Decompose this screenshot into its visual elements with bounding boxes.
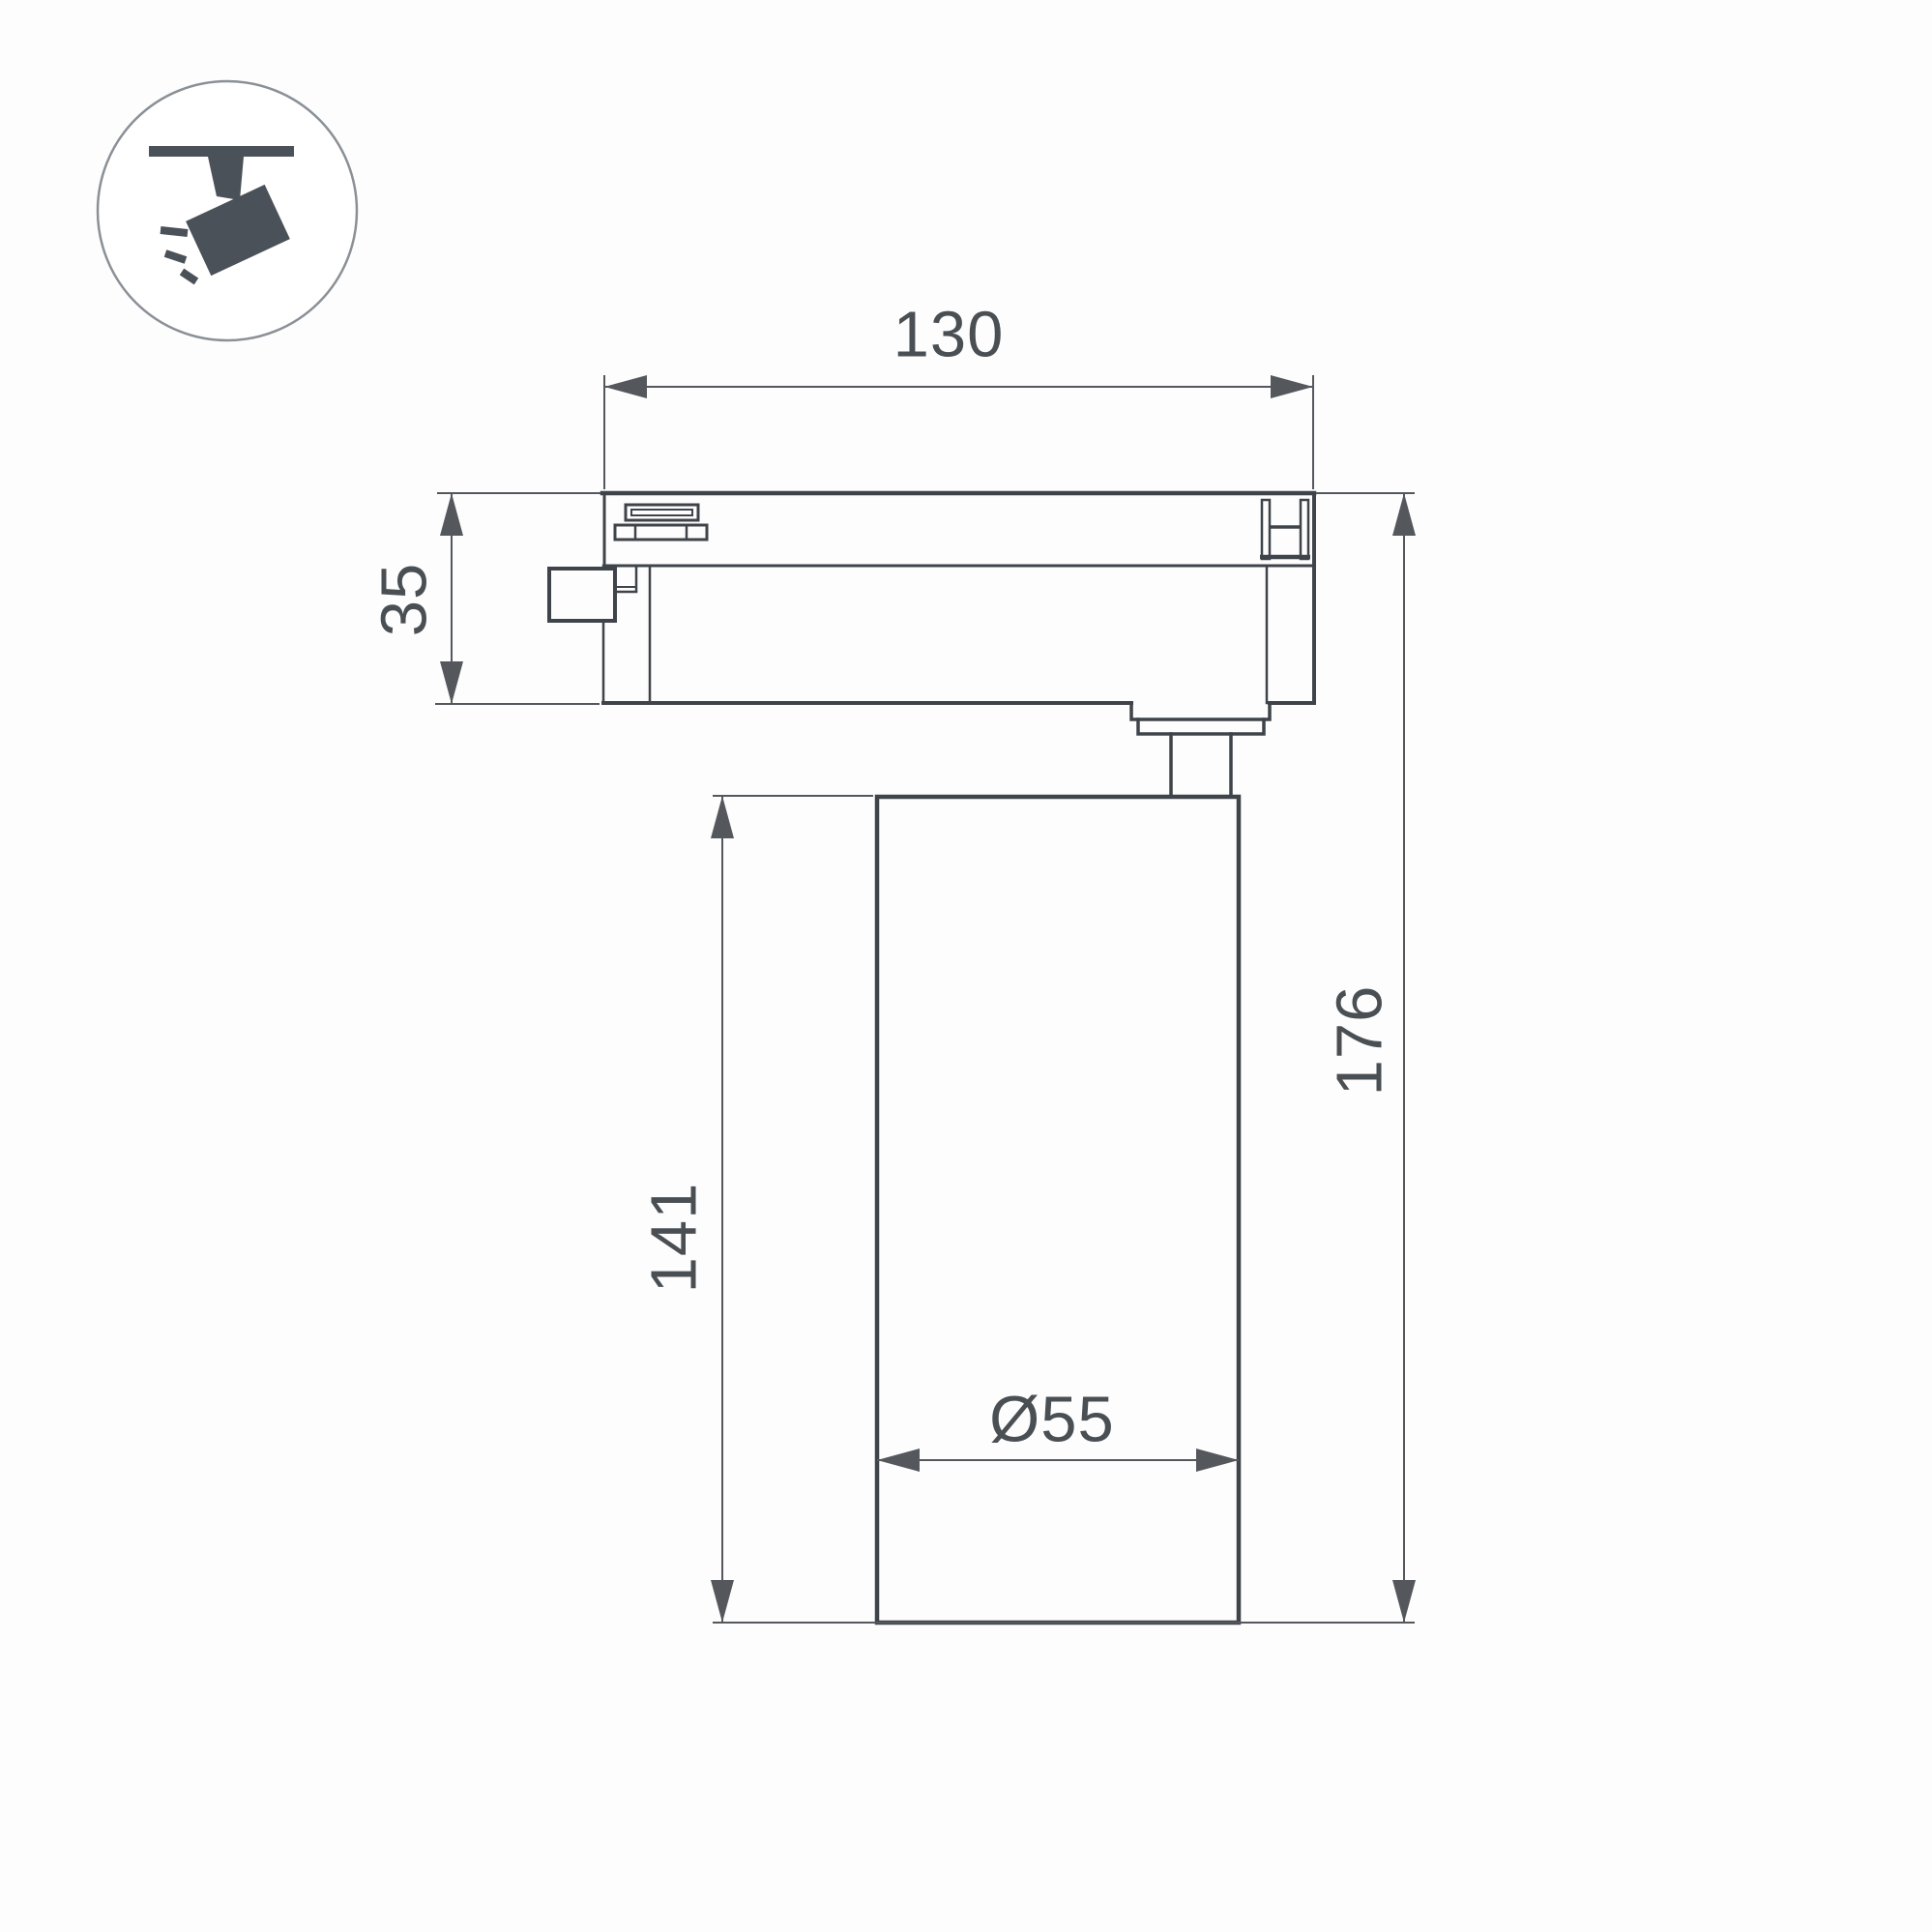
arrowhead-176-bottom	[1392, 1580, 1416, 1623]
arrowhead-130-right	[1271, 375, 1313, 398]
arrowhead-35-bottom	[440, 661, 463, 704]
dimension-body-height	[711, 796, 873, 1623]
track-spotlight-icon	[98, 81, 357, 340]
latch-right-wall	[1301, 500, 1308, 559]
latch-left-wall	[1262, 500, 1270, 559]
arrowhead-130-left	[604, 375, 647, 398]
dim-label-track-width: 130	[893, 303, 1005, 367]
contact-clip-lower	[615, 525, 707, 540]
dimension-track-width	[604, 375, 1313, 489]
contact-clip-upper	[626, 505, 698, 520]
track-adapter-outline	[602, 493, 1314, 703]
arrowhead-141-top	[711, 796, 734, 838]
stem-flange-step1	[1131, 703, 1270, 719]
adapter-side-lock-tab	[549, 569, 615, 621]
adapter-contact-clips	[615, 505, 707, 540]
mount-stem	[1131, 703, 1270, 797]
arrowhead-176-top	[1392, 493, 1416, 536]
dim-label-total-height: 176	[1328, 985, 1392, 1097]
arrowhead-35-top	[440, 493, 463, 536]
dim-label-diameter: Ø55	[989, 1388, 1115, 1452]
arrowhead-141-bottom	[711, 1580, 734, 1623]
drawing-canvas: 130 35 141 176 Ø55	[0, 0, 1932, 1932]
stem-flange-step2	[1138, 719, 1264, 734]
dim-label-body-height: 141	[642, 1183, 707, 1294]
dim-label-adapter-height: 35	[372, 563, 437, 637]
lamp-cylinder-body	[877, 797, 1239, 1623]
technical-drawing	[0, 0, 1932, 1932]
contact-clip-upper-inner	[631, 510, 692, 515]
adapter-right-latch	[1260, 500, 1310, 559]
icon-track-bar	[149, 146, 294, 157]
